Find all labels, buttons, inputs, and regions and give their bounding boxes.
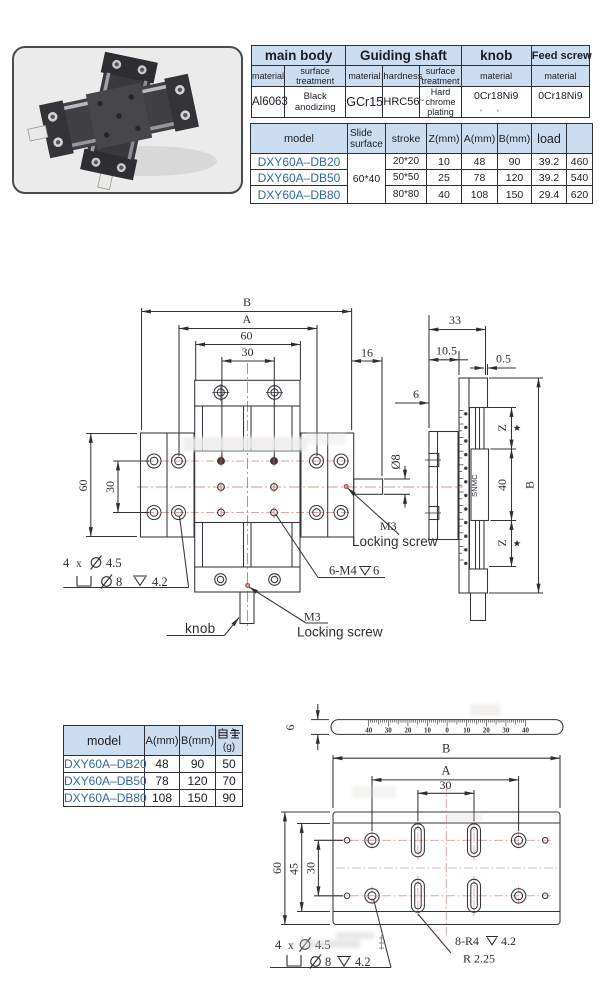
svg-text:6-M4: 6-M4	[329, 564, 358, 578]
svg-text:B: B	[523, 481, 537, 489]
svg-text:4.2: 4.2	[355, 955, 371, 969]
svg-text:knob: knob	[185, 621, 215, 636]
svg-text:60: 60	[241, 329, 253, 343]
svg-text:40: 40	[365, 727, 373, 735]
svg-text:SNMC: SNMC	[470, 474, 479, 497]
svg-text:20: 20	[483, 727, 491, 735]
svg-text:30: 30	[385, 727, 393, 735]
svg-text:40: 40	[522, 727, 530, 735]
svg-text:Locking screw: Locking screw	[297, 625, 383, 640]
svg-text:30: 30	[440, 778, 452, 792]
svg-text:30: 30	[242, 345, 254, 359]
svg-text:B: B	[442, 742, 450, 756]
svg-text:4.2: 4.2	[152, 575, 168, 589]
svg-text:33: 33	[449, 313, 461, 327]
svg-text:0.5: 0.5	[496, 352, 511, 366]
svg-text:Z: Z	[495, 539, 509, 546]
svg-text:B: B	[243, 295, 251, 309]
svg-text:4: 4	[63, 556, 70, 570]
svg-text:6: 6	[283, 725, 297, 731]
svg-text:10: 10	[424, 727, 432, 735]
svg-text:6: 6	[413, 387, 419, 401]
svg-text:10: 10	[463, 727, 471, 735]
svg-text:60: 60	[270, 862, 284, 874]
svg-text:4.2: 4.2	[501, 934, 516, 948]
svg-text:8: 8	[116, 575, 122, 589]
svg-text:x: x	[288, 940, 294, 952]
svg-text:M3: M3	[380, 519, 397, 533]
svg-text:20: 20	[404, 727, 412, 735]
svg-text:8-R4: 8-R4	[455, 934, 479, 948]
svg-text:4: 4	[275, 938, 282, 952]
svg-text:45: 45	[287, 863, 301, 875]
svg-text:16: 16	[361, 346, 373, 360]
svg-text:R 2.25: R 2.25	[463, 952, 495, 966]
svg-text:x: x	[76, 558, 82, 570]
svg-text:0: 0	[445, 727, 449, 735]
svg-text:30: 30	[502, 727, 510, 735]
svg-text:Ø8: Ø8	[389, 454, 403, 469]
svg-text:4.5: 4.5	[106, 556, 122, 570]
svg-text:Locking screw: Locking screw	[352, 534, 438, 549]
svg-text:8: 8	[325, 955, 331, 969]
svg-text:M3: M3	[304, 610, 321, 624]
svg-text:A: A	[442, 764, 451, 778]
svg-text:30: 30	[103, 481, 117, 493]
svg-text:30: 30	[304, 862, 318, 874]
svg-text:A: A	[243, 312, 252, 326]
svg-text:40: 40	[495, 479, 509, 491]
svg-text:Z: Z	[495, 424, 509, 431]
svg-text:6: 6	[373, 564, 379, 578]
svg-text:10.5: 10.5	[436, 344, 457, 358]
svg-text:60: 60	[76, 480, 90, 492]
